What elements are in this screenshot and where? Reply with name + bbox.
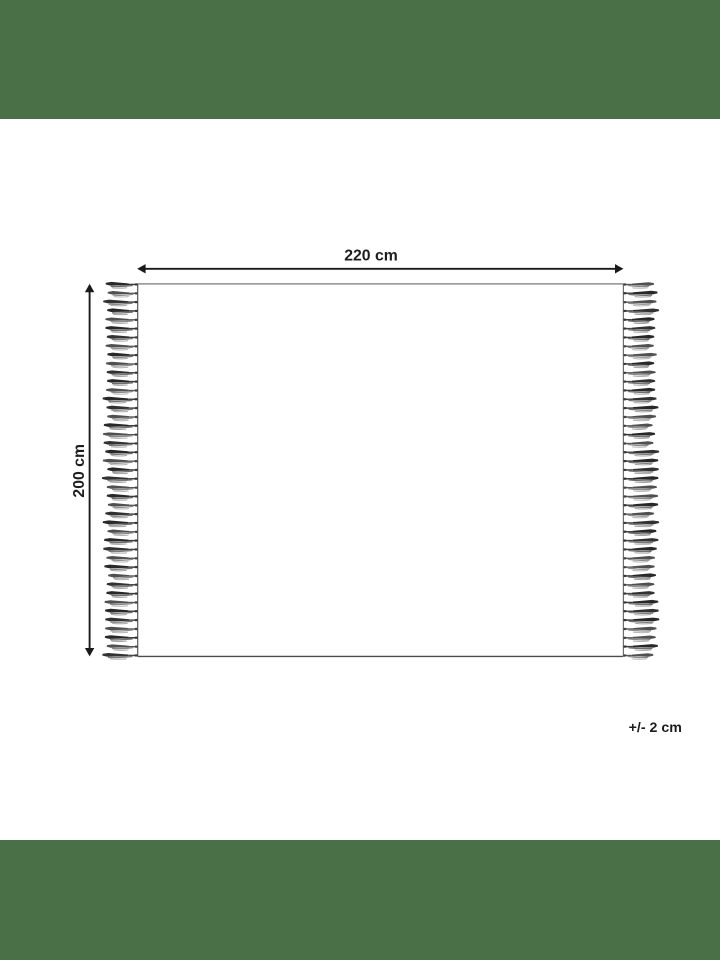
- svg-text:200 cm: 200 cm: [71, 444, 88, 498]
- svg-text:+/- 2 cm: +/- 2 cm: [629, 720, 682, 736]
- svg-text:220 cm: 220 cm: [344, 247, 398, 264]
